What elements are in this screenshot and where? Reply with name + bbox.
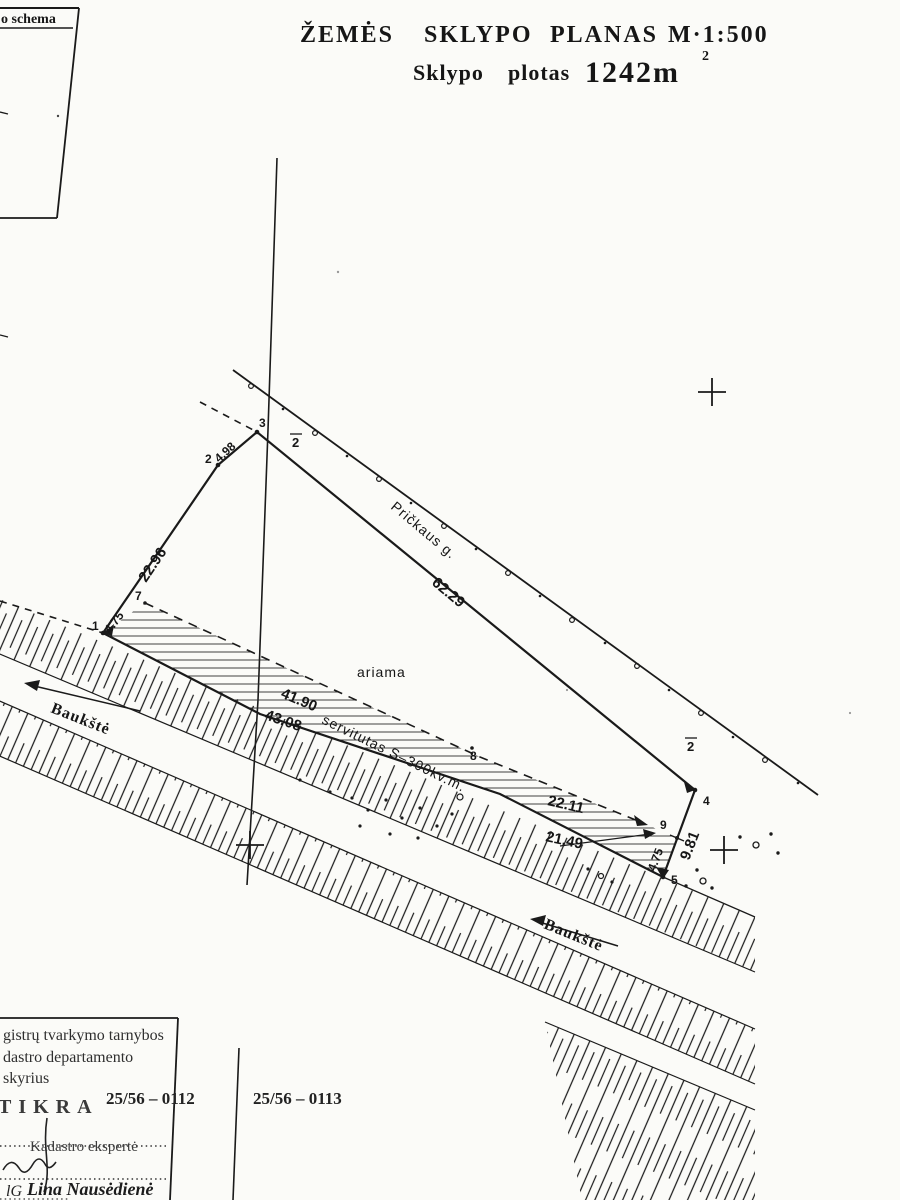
scan-specks bbox=[337, 271, 851, 714]
tree-symbol-2 bbox=[684, 868, 713, 889]
grid-vertical-line bbox=[247, 158, 277, 885]
area-value: 1242m bbox=[585, 56, 680, 89]
dim-3-4: 62.29 bbox=[428, 574, 468, 611]
boundary-ext-north bbox=[200, 402, 257, 432]
stamp-line-1: gistrų tvarkymo tarnybos bbox=[3, 1027, 164, 1044]
scanned-plan-page: o schema ŽEMĖS SKLYPO PLANAS M·1:500 Skl… bbox=[0, 0, 900, 1200]
grid-cross-2 bbox=[710, 836, 738, 864]
point-1: 1 bbox=[92, 619, 99, 633]
title-block: ŽEMĖS SKLYPO PLANAS M·1:500 Sklypo plota… bbox=[300, 21, 769, 89]
point-3: 3 bbox=[259, 416, 266, 430]
road-number-1: 2 bbox=[290, 434, 302, 450]
plan-title: ŽEMĖS SKLYPO PLANAS M·1:500 bbox=[300, 21, 769, 48]
point-5: 5 bbox=[671, 873, 678, 887]
landuse-label: ariama bbox=[357, 664, 406, 680]
signature-squiggle bbox=[3, 1159, 56, 1172]
point-9: 9 bbox=[660, 818, 667, 832]
stamp-line-2: dastro departamento bbox=[3, 1049, 133, 1066]
svg-text:2: 2 bbox=[687, 739, 694, 754]
svg-text:2: 2 bbox=[292, 435, 299, 450]
point-8: 8 bbox=[470, 749, 477, 763]
point-7: 7 bbox=[135, 589, 142, 603]
signature-block: Kadastro ekspertė lG Lina Nausėdienė bbox=[0, 1118, 168, 1200]
dim-1-2: 22.96 bbox=[135, 545, 170, 586]
expert-name: Lina Nausėdienė bbox=[26, 1179, 154, 1199]
schema-box: o schema bbox=[0, 8, 79, 218]
point-2: 2 bbox=[205, 452, 212, 466]
area-exponent: 2 bbox=[702, 49, 709, 64]
dim-4-9: 9.81 bbox=[677, 829, 703, 862]
tree-symbol-1 bbox=[738, 832, 779, 854]
sheet-code-1: 25/56 – 0112 bbox=[106, 1089, 195, 1108]
grid-cross-1 bbox=[698, 378, 726, 406]
plan-svg: o schema ŽEMĖS SKLYPO PLANAS M·1:500 Skl… bbox=[0, 0, 900, 1200]
road-number-2: 2 bbox=[685, 738, 697, 754]
edge-mark bbox=[0, 335, 8, 337]
signature-initials: lG bbox=[6, 1183, 22, 1200]
schema-label: o schema bbox=[1, 12, 56, 27]
dim-2-3: 4.98 bbox=[212, 439, 239, 465]
sheet-code-2: 25/56 – 0113 bbox=[253, 1089, 342, 1108]
stamp-line-3: skyrius bbox=[3, 1070, 49, 1087]
point-4: 4 bbox=[703, 794, 710, 808]
area-line: Sklypo plotas bbox=[413, 60, 570, 85]
tikra-stamp: TIKRA bbox=[0, 1096, 99, 1118]
